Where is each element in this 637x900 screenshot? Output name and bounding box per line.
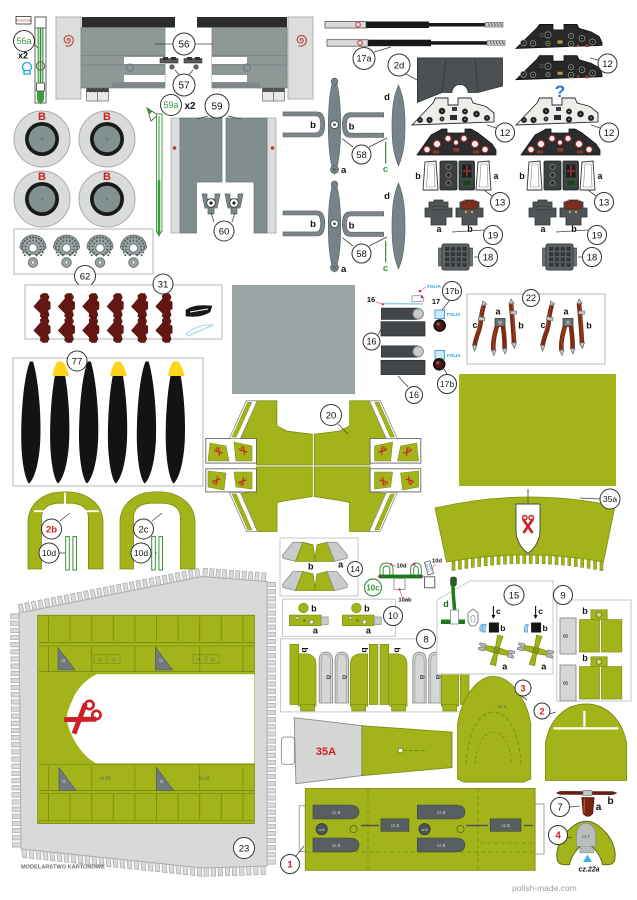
svg-text:FOLIA: FOLIA [427, 284, 441, 289]
svg-text:b: b [518, 321, 524, 331]
svg-text:d: d [443, 599, 449, 609]
svg-text:10: 10 [388, 611, 398, 621]
svg-text:10d: 10d [432, 559, 442, 565]
svg-text:b: b [467, 224, 473, 234]
svg-text:b: b [571, 224, 577, 234]
svg-text:cz.19: cz.19 [199, 776, 210, 781]
svg-text:cz.: cz. [97, 657, 102, 662]
svg-text:cz.: cz. [210, 657, 215, 662]
svg-text:23: 23 [239, 843, 250, 854]
svg-text:cz.7: cz.7 [582, 834, 590, 839]
svg-text:d: d [384, 92, 390, 103]
svg-text:17a: 17a [356, 54, 371, 64]
svg-text:b: b [500, 623, 505, 633]
svg-text:cz.19: cz.19 [100, 776, 111, 781]
svg-text:20: 20 [326, 410, 337, 421]
svg-text:15: 15 [509, 590, 520, 601]
svg-text:8: 8 [423, 634, 428, 645]
svg-text:17b: 17b [445, 286, 459, 296]
svg-text:a: a [341, 165, 347, 176]
svg-text:b: b [607, 796, 613, 807]
svg-text:19: 19 [488, 230, 499, 241]
svg-text:polish-made.com: polish-made.com [512, 883, 577, 893]
svg-text:b: b [582, 606, 588, 616]
svg-text:57: 57 [178, 81, 190, 92]
svg-text:2: 2 [539, 707, 544, 717]
svg-text:14: 14 [350, 564, 360, 574]
svg-text:a: a [436, 224, 442, 234]
svg-text:10ab: 10ab [398, 598, 412, 604]
svg-text:59: 59 [211, 102, 223, 113]
svg-text:cz.22a: cz.22a [578, 867, 599, 874]
svg-text:cz.9: cz.9 [332, 843, 341, 848]
svg-text:10c: 10c [366, 584, 380, 593]
svg-text:b: b [360, 647, 370, 652]
svg-text:4: 4 [555, 831, 561, 842]
svg-text:12: 12 [604, 128, 615, 139]
svg-text:56: 56 [178, 40, 190, 51]
svg-text:a: a [597, 171, 603, 181]
svg-text:b: b [349, 221, 355, 232]
svg-text:10d: 10d [134, 548, 148, 558]
svg-text:56a: 56a [16, 36, 31, 46]
svg-text:cz.9: cz.9 [437, 843, 446, 848]
svg-text:a: a [493, 171, 499, 181]
svg-text:12: 12 [500, 128, 511, 139]
svg-text:22: 22 [526, 293, 536, 303]
svg-text:cz10: cz10 [421, 828, 428, 832]
svg-text:a: a [325, 675, 334, 680]
svg-text:58: 58 [356, 150, 367, 161]
svg-text:x2: x2 [184, 101, 196, 112]
svg-text:B: B [103, 111, 111, 123]
svg-text:c: c [383, 164, 388, 175]
svg-text:b: b [542, 623, 547, 633]
svg-text:a: a [418, 675, 427, 680]
svg-text:B: B [38, 171, 46, 183]
svg-text:12: 12 [602, 59, 613, 70]
svg-text:2d: 2d [394, 60, 405, 71]
svg-text:7: 7 [557, 803, 563, 814]
svg-text:58: 58 [356, 249, 367, 260]
svg-text:2c: 2c [138, 525, 148, 536]
svg-text:b: b [519, 171, 525, 181]
svg-text:d: d [384, 191, 390, 202]
svg-text:cz.: cz. [111, 657, 116, 662]
svg-text:c: c [496, 606, 501, 616]
svg-text:13: 13 [599, 197, 610, 208]
svg-text:13: 13 [495, 197, 506, 208]
svg-text:a: a [341, 264, 347, 275]
svg-text:10d: 10d [397, 564, 407, 570]
svg-text:b: b [311, 604, 317, 614]
svg-text:cz: cz [160, 780, 164, 784]
svg-text:cz.4: cz.4 [498, 704, 507, 709]
svg-text:cz: cz [62, 780, 66, 784]
svg-text:b: b [349, 122, 355, 133]
svg-text:b: b [415, 171, 421, 181]
svg-text:a: a [596, 802, 602, 813]
svg-text:35A: 35A [316, 746, 336, 758]
svg-text:FOLIA: FOLIA [447, 312, 461, 317]
svg-text:a: a [341, 675, 350, 680]
svg-text:b: b [310, 120, 316, 131]
svg-text:b: b [310, 219, 316, 230]
svg-text:60: 60 [219, 226, 230, 237]
svg-text:c: c [538, 606, 543, 616]
svg-text:18: 18 [587, 252, 598, 263]
svg-text:17b: 17b [440, 379, 454, 389]
svg-text:1: 1 [287, 859, 293, 870]
svg-text:18: 18 [483, 252, 494, 263]
svg-text:8: 8 [563, 634, 570, 638]
svg-text:10d: 10d [42, 548, 56, 558]
svg-text:b: b [300, 647, 310, 652]
svg-text:cz.: cz. [196, 657, 201, 662]
svg-text:16: 16 [367, 295, 375, 304]
svg-text:b: b [586, 321, 592, 331]
svg-text:2b: 2b [46, 525, 57, 536]
svg-text:8: 8 [563, 681, 570, 685]
svg-text:17: 17 [432, 297, 440, 306]
svg-text:77: 77 [72, 356, 83, 367]
svg-text:59a: 59a [163, 100, 178, 110]
svg-text:cz: cz [62, 659, 66, 663]
svg-text:cz.8: cz.8 [501, 823, 510, 828]
svg-text:62: 62 [80, 271, 91, 282]
svg-text:b: b [582, 653, 588, 663]
svg-text:cz.9: cz.9 [437, 810, 446, 815]
svg-text:c: c [472, 320, 477, 330]
svg-text:16: 16 [366, 337, 376, 347]
svg-text:RUNDSTAB: RUNDSTAB [16, 19, 30, 23]
svg-text:cz.9: cz.9 [332, 810, 341, 815]
svg-text:a: a [540, 224, 546, 234]
svg-text:b: b [364, 604, 370, 614]
svg-text:35a: 35a [603, 494, 617, 504]
svg-text:c: c [383, 263, 388, 274]
svg-text:B: B [103, 171, 111, 183]
svg-text:FOLIA: FOLIA [447, 353, 461, 358]
svg-text:b: b [393, 647, 403, 652]
svg-text:31: 31 [158, 279, 169, 290]
svg-text:B: B [38, 111, 46, 123]
svg-text:19: 19 [592, 230, 603, 241]
svg-text:c: c [540, 320, 545, 330]
svg-text:cz10: cz10 [318, 828, 325, 832]
svg-text:16: 16 [409, 390, 419, 400]
svg-text:x2: x2 [18, 51, 28, 61]
svg-text:cz: cz [159, 659, 163, 663]
svg-text:b: b [308, 562, 314, 572]
svg-text:9: 9 [560, 590, 565, 601]
svg-text:46-6: 46-6 [86, 864, 99, 871]
svg-text:3: 3 [520, 684, 525, 694]
svg-text:cz.8: cz.8 [391, 823, 400, 828]
